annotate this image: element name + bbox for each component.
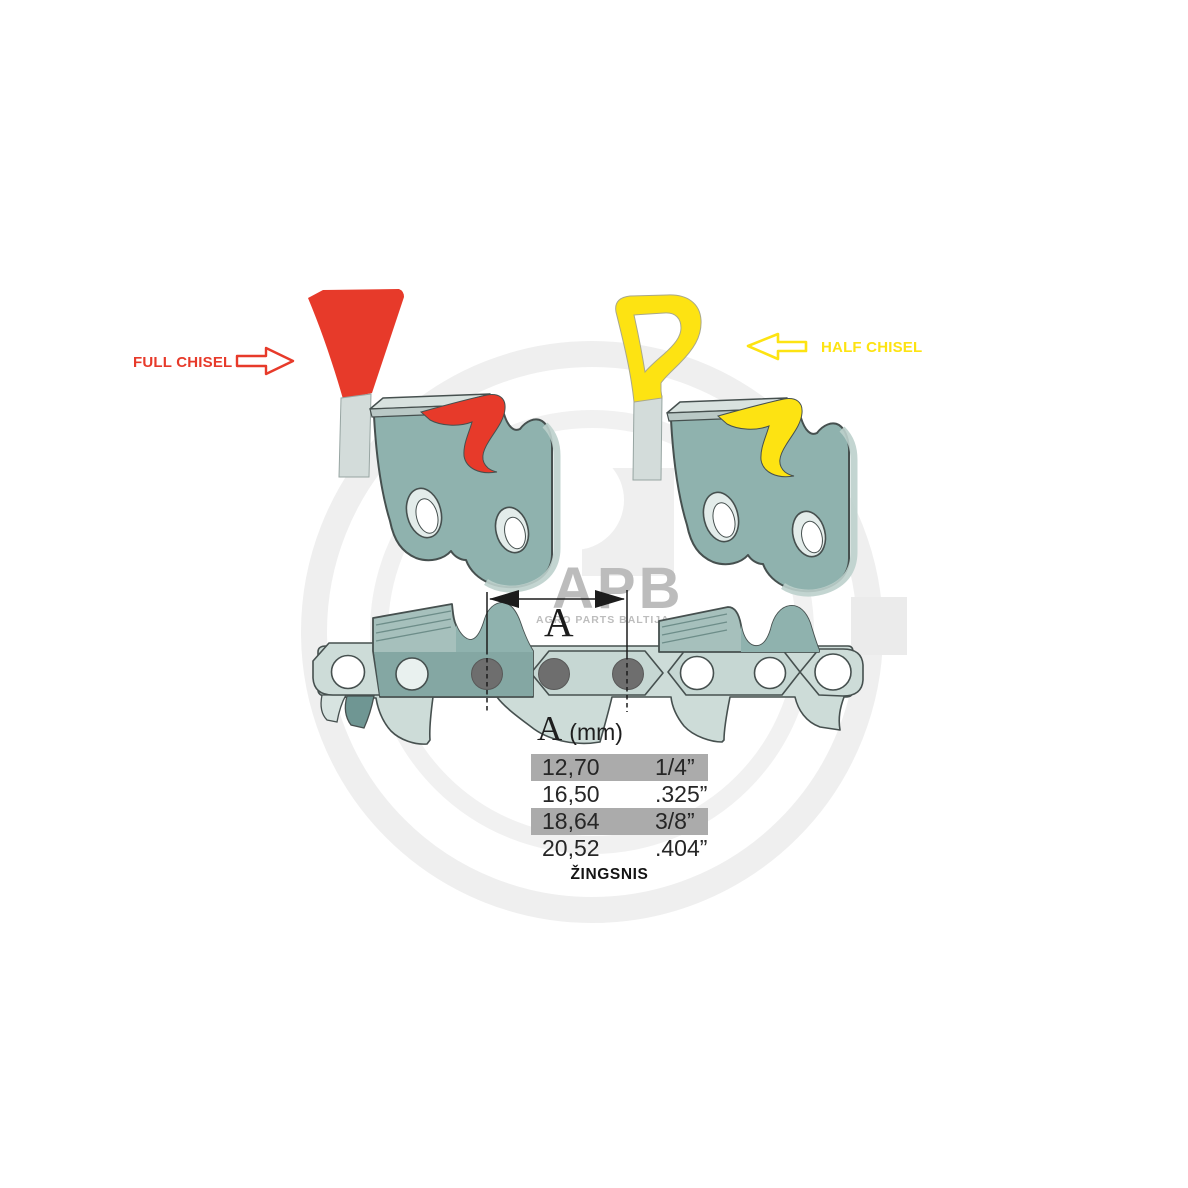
rivet: [613, 659, 644, 690]
half-chisel-arrow-icon: [748, 334, 806, 359]
pitch-dimension-letter: A: [544, 598, 574, 646]
pitch-inch-value: 1/4”: [655, 754, 708, 781]
product-diagram: APB AGRO PARTS BALTIJA: [0, 0, 1188, 1188]
pitch-inch-value: .404”: [655, 835, 708, 862]
cutter-link-3d-half-chisel: [667, 398, 854, 593]
pitch-inch-value: 3/8”: [655, 808, 708, 835]
full-chisel-label: FULL CHISEL: [133, 354, 232, 371]
full-chisel-heel: [339, 394, 371, 477]
pitch-mm-value: 20,52: [531, 835, 655, 862]
pitch-table-row: 18,64 3/8”: [531, 808, 708, 835]
chain-left-tang: [321, 695, 346, 722]
rivet: [539, 659, 570, 690]
pitch-table-row: 12,70 1/4”: [531, 754, 708, 781]
link-hole: [681, 657, 714, 690]
pitch-table-header-unit: (mm): [569, 719, 623, 746]
pitch-inch-value: .325”: [655, 781, 708, 808]
link-hole: [396, 658, 428, 690]
pitch-table-row: 20,52 .404”: [531, 835, 708, 862]
pitch-mm-value: 12,70: [531, 754, 655, 781]
pitch-table: A (mm) 12,70 1/4” 16,50 .325” 18,64 3/8”…: [531, 709, 708, 862]
half-chisel-profile: [616, 295, 701, 402]
pitch-caption: ŽINGSNIS: [521, 866, 698, 884]
pitch-table-row: 16,50 .325”: [531, 781, 708, 808]
link-hole: [332, 656, 365, 689]
pitch-mm-value: 16,50: [531, 781, 655, 808]
half-chisel-label: HALF CHISEL: [821, 339, 922, 356]
pitch-table-rows: 12,70 1/4” 16,50 .325” 18,64 3/8” 20,52 …: [531, 754, 708, 862]
link-hole: [815, 654, 851, 690]
pitch-table-header-symbol: A: [537, 709, 562, 749]
full-chisel-profile: [308, 289, 404, 399]
pitch-mm-value: 18,64: [531, 808, 655, 835]
half-chisel-heel: [633, 396, 662, 480]
full-chisel-arrow-icon: [237, 348, 293, 374]
watermark-square-right: [851, 597, 907, 655]
cutter-tooth-left-tang: [345, 696, 374, 728]
chain-diagram-graphic: APB AGRO PARTS BALTIJA: [0, 0, 1188, 1188]
pitch-table-header: A (mm): [531, 709, 708, 749]
link-hole: [755, 658, 786, 689]
